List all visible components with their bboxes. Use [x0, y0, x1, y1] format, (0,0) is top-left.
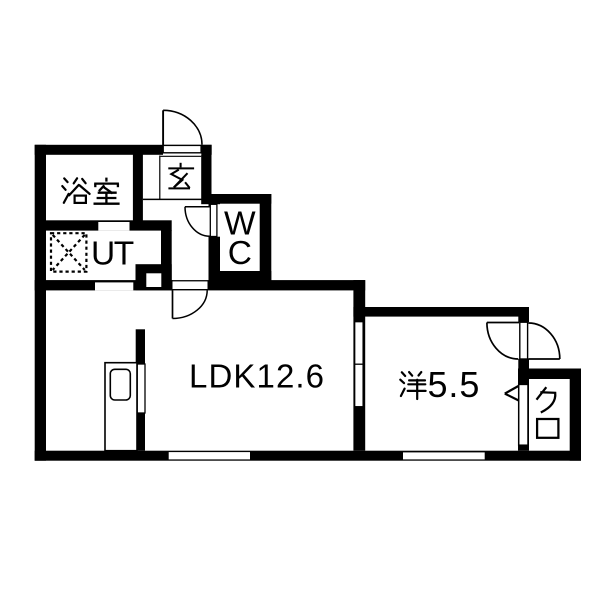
- svg-text:LDK12.6: LDK12.6: [189, 358, 325, 395]
- svg-text:UT: UT: [91, 236, 134, 273]
- svg-text:C: C: [228, 235, 252, 272]
- svg-text:5.5: 5.5: [428, 364, 481, 405]
